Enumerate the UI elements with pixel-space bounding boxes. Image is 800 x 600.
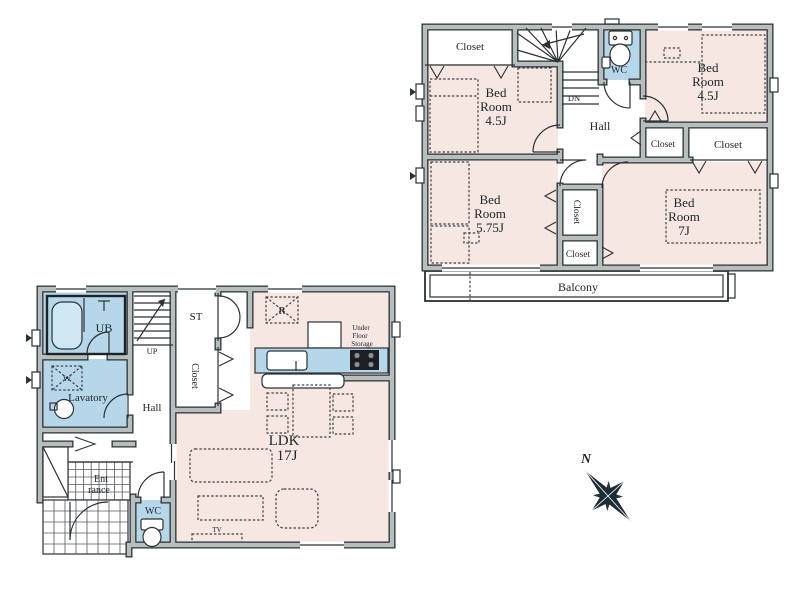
counter-return xyxy=(262,374,344,388)
compass-rose: N xyxy=(569,452,647,536)
first-floor-plan: UB Lavatory W UP Hall ST Closet R Under … xyxy=(26,285,400,554)
closet-top-left-label: Closet xyxy=(456,41,484,53)
svg-text:Bed: Bed xyxy=(480,192,501,207)
hall1-label: Hall xyxy=(143,402,162,414)
stove-icon xyxy=(350,350,379,370)
svg-text:17J: 17J xyxy=(277,448,298,464)
floor-plan-drawing: Closet WC DN Hall Bed Room 4.5J Bed Room… xyxy=(0,0,800,600)
st-label: ST xyxy=(190,311,203,323)
svg-text:7J: 7J xyxy=(678,223,690,238)
svg-text:Bed: Bed xyxy=(674,195,695,210)
up-label: UP xyxy=(147,346,158,356)
svg-text:5.75J: 5.75J xyxy=(476,220,504,235)
svg-text:4.5J: 4.5J xyxy=(485,113,506,128)
dn-label: DN xyxy=(568,93,580,103)
closet-bottom-label: Closet xyxy=(566,250,591,260)
svg-text:LDK: LDK xyxy=(269,433,300,449)
svg-text:Bed: Bed xyxy=(698,60,719,75)
lavatory-label: Lavatory xyxy=(68,392,108,404)
second-floor-plan: Closet WC DN Hall Bed Room 4.5J Bed Room… xyxy=(410,19,778,301)
north-label: N xyxy=(580,452,592,467)
closet-mid-large-label: Closet xyxy=(714,139,742,151)
svg-text:Room: Room xyxy=(668,209,700,224)
floor-plan-page: Closet WC DN Hall Bed Room 4.5J Bed Room… xyxy=(0,0,800,600)
svg-text:Room: Room xyxy=(474,206,506,221)
ldk-sliding-door xyxy=(170,444,177,480)
wc1-label: WC xyxy=(145,506,161,517)
kitchen-sink-icon xyxy=(267,351,307,370)
svg-text:Under: Under xyxy=(352,324,370,332)
svg-text:Storage: Storage xyxy=(351,340,372,348)
toilet-icon-1f xyxy=(141,519,163,547)
svg-text:Room: Room xyxy=(480,99,512,114)
svg-text:Ent: Ent xyxy=(94,474,108,485)
svg-text:rance: rance xyxy=(88,485,110,496)
svg-text:Bed: Bed xyxy=(486,85,507,100)
fridge-label: R xyxy=(278,305,286,317)
closet-mid-small-label: Closet xyxy=(651,140,676,150)
tv-label: TV xyxy=(212,526,221,534)
wc2-label: WC xyxy=(611,65,627,76)
svg-text:Room: Room xyxy=(692,74,724,89)
closet-tall-label: Closet xyxy=(571,200,581,225)
porch-tiles xyxy=(43,500,128,554)
washer-label: W xyxy=(63,373,71,383)
bathtub-icon xyxy=(52,298,84,349)
balcony-label: Balcony xyxy=(558,280,598,294)
hall2-label: Hall xyxy=(590,119,611,133)
closet1-label: Closet xyxy=(189,363,200,389)
svg-text:Floor: Floor xyxy=(352,332,368,340)
svg-text:4.5J: 4.5J xyxy=(697,88,718,103)
ub-label: UB xyxy=(96,321,113,335)
under-floor-storage-box xyxy=(308,322,341,348)
